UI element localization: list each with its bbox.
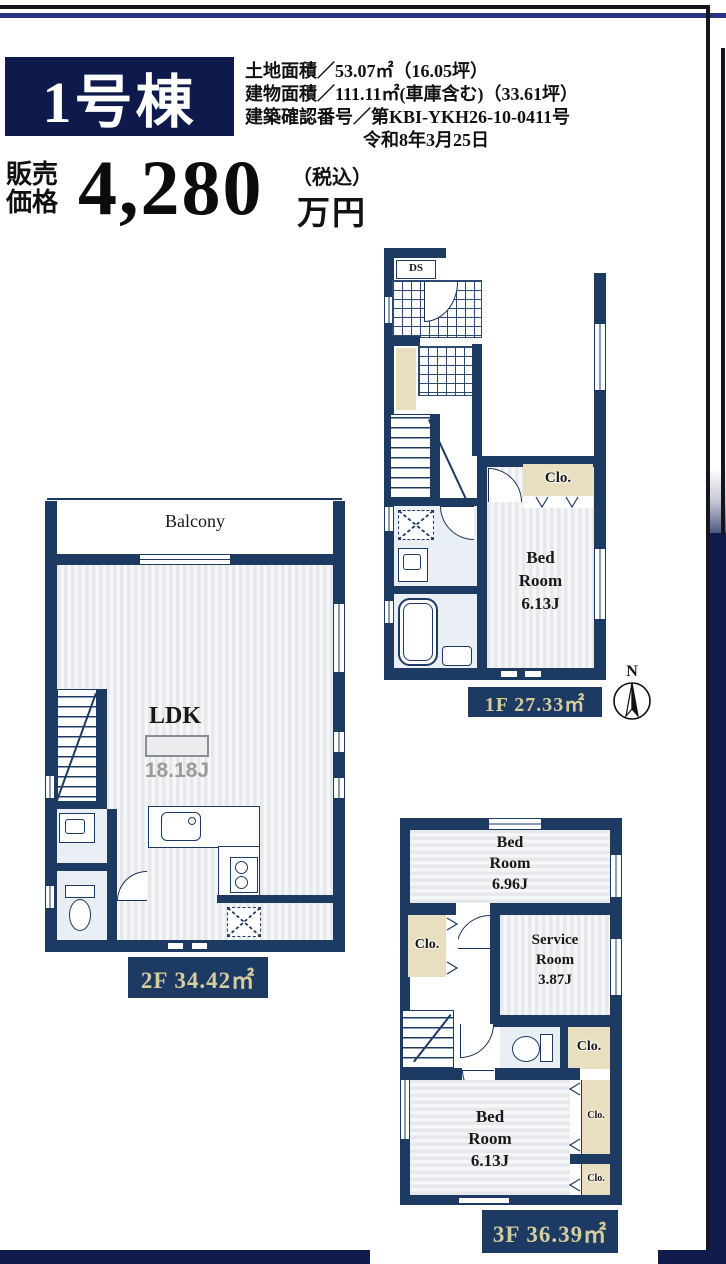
balcony-door-window	[139, 555, 231, 564]
price-label: 販売 価格	[6, 161, 58, 217]
property-details: 土地面積／53.07㎡（16.05坪） 建物面積／111.11㎡(車庫含む)（3…	[245, 60, 578, 152]
service-room-label: Service Room 3.87J	[500, 930, 610, 990]
service-room-line1: Service	[500, 930, 610, 950]
toilet-tank-3f	[540, 1034, 553, 1062]
compass-icon: N	[606, 660, 658, 726]
wall	[394, 586, 482, 594]
bottom-bar-left	[0, 1250, 370, 1264]
price-label-line1: 販売	[6, 161, 58, 189]
window	[611, 854, 621, 898]
shoe-cabinet	[396, 348, 416, 410]
closet-hall-3f: Clo.	[568, 1027, 610, 1069]
right-strip-navy	[710, 533, 726, 1264]
closet-door-marks	[446, 917, 458, 931]
window	[334, 603, 344, 673]
detail-land-area: 土地面積／53.07㎡（16.05坪）	[245, 60, 578, 83]
bedroom-small-line2: Room	[410, 1128, 570, 1150]
closet-right-top-3f: Clo.	[582, 1080, 610, 1154]
wall	[430, 414, 440, 498]
window	[488, 819, 542, 829]
price-unit: 万円	[297, 186, 367, 234]
price-amount: 4,280	[78, 148, 264, 228]
bedroom-large-label: Bed Room 6.96J	[410, 832, 610, 895]
building-badge-text: 1号棟	[42, 55, 196, 139]
burner	[235, 876, 248, 889]
ldk-label: LDK	[125, 703, 225, 730]
wall	[392, 336, 420, 346]
window	[334, 731, 344, 753]
bedroom-large-line3: 6.96J	[410, 874, 610, 895]
floor-plan-1f: DS Clo. B	[384, 248, 606, 680]
bathtub	[398, 598, 438, 666]
closet-door-strip	[570, 1080, 582, 1195]
bedroom-large-line1: Bed	[410, 832, 610, 853]
wall	[333, 501, 345, 554]
window	[334, 777, 344, 799]
kitchen-sink	[161, 812, 201, 841]
staircase-1f	[390, 414, 432, 498]
washbasin-bowl	[65, 819, 85, 834]
ds-shaft: DS	[396, 260, 436, 279]
service-room-line3: 3.87J	[500, 970, 610, 990]
floor-plan-2f: Balcony LDK 18.18J	[45, 497, 345, 957]
stove	[230, 857, 258, 893]
door-arc	[460, 1024, 494, 1058]
bedroom-small-line3: 6.13J	[410, 1150, 570, 1172]
right-frame-line	[706, 5, 710, 1264]
wall	[560, 1027, 568, 1069]
washbasin	[398, 548, 428, 582]
wall	[400, 1195, 622, 1205]
bath-vanity	[442, 646, 472, 666]
laundry-space	[398, 510, 434, 540]
vent	[458, 1197, 510, 1204]
refrigerator-space	[227, 907, 261, 937]
flyer-panel: 1号棟 土地面積／53.07㎡（16.05坪） 建物面積／111.11㎡(車庫含…	[0, 0, 726, 1264]
bedroom-1f-line1: Bed	[487, 546, 594, 569]
window	[401, 1078, 409, 1140]
wall	[490, 1015, 622, 1027]
bedroom-small-label: Bed Room 6.13J	[410, 1106, 570, 1172]
x-mark-icon	[228, 908, 260, 936]
top-black-line	[0, 5, 710, 9]
wall	[400, 1068, 462, 1080]
vent	[191, 942, 208, 950]
closet-door-marks	[565, 496, 579, 508]
wall	[477, 456, 487, 668]
wall	[472, 344, 482, 456]
entry-hall-tiles	[418, 346, 475, 396]
compass-north-label: N	[626, 663, 638, 680]
closet-hall-3f-label: Clo.	[568, 1039, 610, 1055]
floor-label-2f-text: 2F 34.42㎡	[141, 961, 255, 995]
door-arc	[456, 915, 490, 949]
bedroom-1f-line2: Room	[487, 569, 594, 592]
toilet-bowl-3f	[512, 1036, 540, 1062]
burner	[235, 861, 248, 874]
washbasin-bowl	[403, 554, 421, 570]
bedroom-large-line2: Room	[410, 853, 610, 874]
window	[611, 938, 621, 996]
window	[595, 548, 605, 620]
bedroom-small-line1: Bed	[410, 1106, 570, 1128]
wall	[400, 903, 456, 915]
window	[385, 506, 393, 532]
toilet-tank-2f	[65, 885, 95, 898]
washbasin-2f	[59, 813, 95, 843]
closet-right-bottom-3f: Clo.	[582, 1164, 610, 1195]
ldk-counter-table	[145, 735, 209, 757]
detail-date: 令和8年3月25日	[245, 129, 578, 152]
closet-right-top-label: Clo.	[582, 1110, 610, 1121]
ldk-size-label: 18.18J	[129, 759, 225, 783]
wall	[97, 689, 107, 807]
bottom-bar-right	[658, 1250, 726, 1264]
closet-door-marks	[569, 1082, 581, 1096]
closet-door-marks	[569, 1178, 581, 1192]
balcony-label: Balcony	[105, 511, 285, 532]
closet-door-strip	[523, 496, 593, 508]
closet-right-bottom-label: Clo.	[582, 1173, 610, 1184]
closet-1f: Clo.	[523, 464, 593, 496]
wall	[384, 668, 606, 680]
floor-label-3f: 3F 36.39㎡	[482, 1210, 618, 1253]
floor-label-3f-text: 3F 36.39㎡	[493, 1215, 607, 1249]
closet-door-marks	[569, 1138, 581, 1152]
wall	[490, 903, 622, 915]
price-label-line2: 価格	[6, 189, 58, 217]
wall	[57, 801, 107, 809]
floor-label-1f: 1F 27.33㎡	[468, 687, 602, 717]
right-edge-line	[721, 48, 725, 535]
floor-plan-3f: Bed Room 6.96J Clo. Service Room 3.87J	[400, 818, 622, 1205]
bedroom-1f-label: Bed Room 6.13J	[487, 546, 594, 615]
closet-left-3f-label: Clo.	[408, 937, 446, 953]
floor-label-1f-text: 1F 27.33㎡	[485, 688, 585, 717]
toilet-bowl-2f	[69, 899, 91, 931]
closet-door-strip	[446, 915, 458, 977]
wall	[107, 809, 117, 940]
closet-door-marks	[535, 496, 549, 508]
wall	[495, 1068, 580, 1080]
wall	[490, 903, 500, 1027]
bedroom-1f-line3: 6.13J	[487, 592, 594, 615]
wall	[57, 863, 107, 871]
wall	[390, 498, 482, 506]
service-room-line2: Room	[500, 950, 610, 970]
window	[595, 323, 605, 391]
closet-left-3f: Clo.	[408, 915, 446, 977]
window	[385, 600, 393, 624]
closet-door-marks	[446, 961, 458, 975]
top-blue-line	[0, 13, 726, 18]
wall	[570, 1154, 622, 1164]
floor-label-2f: 2F 34.42㎡	[128, 957, 268, 998]
window	[46, 775, 54, 799]
wall	[45, 501, 57, 554]
wall	[217, 895, 333, 903]
closet-1f-label: Clo.	[523, 470, 593, 487]
x-mark-icon	[399, 511, 433, 539]
ds-label: DS	[397, 262, 435, 274]
vent	[524, 670, 542, 678]
detail-building-area: 建物面積／111.11㎡(車庫含む)（33.61坪）	[245, 83, 578, 106]
building-badge: 1号棟	[5, 57, 234, 136]
balcony-rail	[47, 498, 342, 500]
faucet	[188, 817, 196, 825]
window	[46, 885, 54, 909]
detail-confirmation-number: 建築確認番号／第KBI-YKH26-10-0411号	[245, 106, 578, 129]
vent	[167, 942, 184, 950]
vent	[500, 670, 518, 678]
